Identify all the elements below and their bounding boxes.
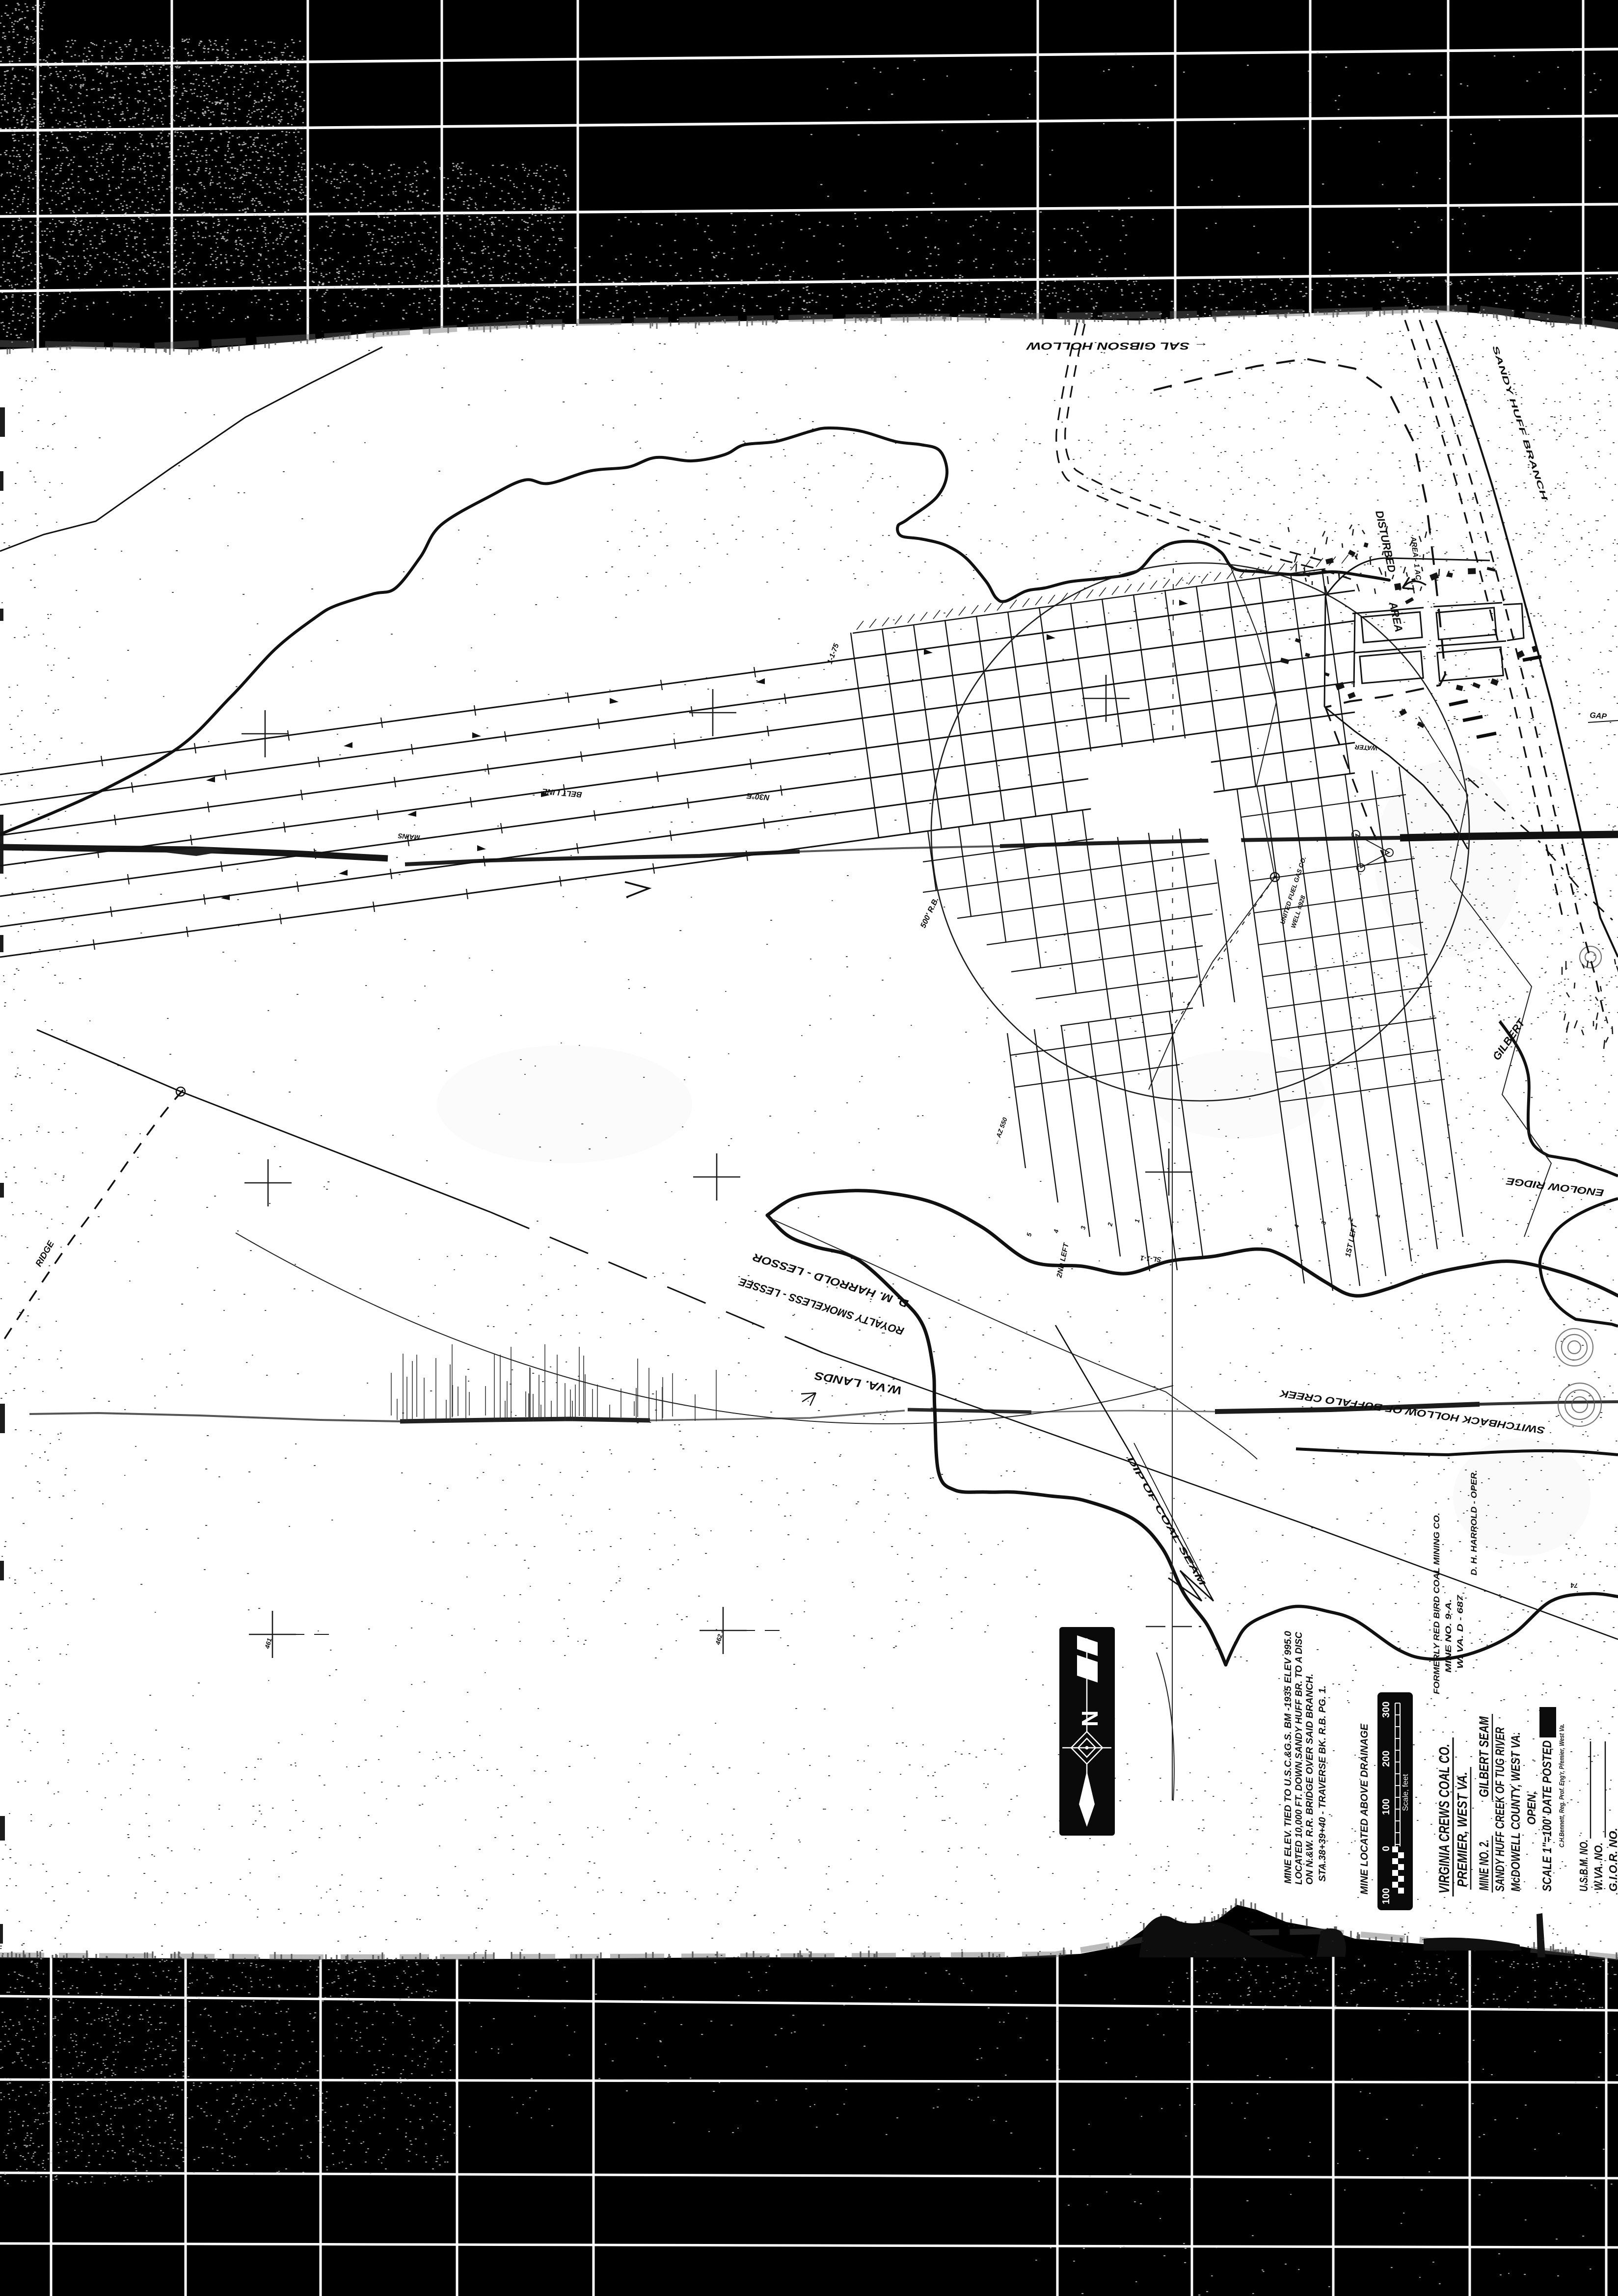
svg-text:LOCATED 10,000 FT. DOWN SANDY: LOCATED 10,000 FT. DOWN SANDY HUFF BR. T…	[1294, 1632, 1304, 1885]
svg-text:D. H. HARROLD - OPER.: D. H. HARROLD - OPER.	[1469, 1470, 1479, 1575]
svg-text:MINE LOCATED ABOVE DRAINAGE: MINE LOCATED ABOVE DRAINAGE	[1359, 1723, 1370, 1895]
svg-text:N: N	[1077, 1710, 1103, 1727]
svg-text:MINE NO. 9-A.: MINE NO. 9-A.	[1444, 1599, 1453, 1673]
svg-text:0: 0	[1381, 1846, 1392, 1851]
svg-text:C.H.Bennett, Reg. Prof. Eng'r,: C.H.Bennett, Reg. Prof. Eng'r, Premier, …	[1558, 1724, 1565, 1847]
svg-text:W.VA. NO.: W.VA. NO.	[1592, 1842, 1605, 1891]
svg-text:ON N.&W. R.R. BRIDGE OVER SAID: ON N.&W. R.R. BRIDGE OVER SAID BRANCH.	[1305, 1674, 1315, 1885]
svg-text:OPEN,: OPEN,	[1525, 1791, 1538, 1825]
svg-text:200: 200	[1381, 1751, 1392, 1767]
svg-text:Scale, feet: Scale, feet	[1402, 1774, 1410, 1811]
svg-text:U.S.B.M. NO.: U.S.B.M. NO.	[1577, 1840, 1590, 1892]
svg-text:← SAL GIBSON HOLLOW: ← SAL GIBSON HOLLOW	[1025, 340, 1209, 351]
svg-text:MINE NO. 2.: MINE NO. 2.	[1477, 1840, 1491, 1891]
svg-text:MINE ELEV. TIED TO U.S.C.&G.S: MINE ELEV. TIED TO U.S.C.&G.S. BM -1935 …	[1283, 1631, 1294, 1884]
svg-text:FORMERLY RED BIRD COAL MINING: FORMERLY RED BIRD COAL MINING CO.	[1432, 1513, 1441, 1694]
svg-text:SCALE 1"=100' DATE POSTED: SCALE 1"=100' DATE POSTED	[1540, 1740, 1554, 1892]
svg-text:GILBERT SEAM: GILBERT SEAM	[1477, 1716, 1491, 1797]
svg-text:G.I.O.R. NO.: G.I.O.R. NO.	[1607, 1828, 1618, 1892]
svg-text:STA.38+39+40 - TRAVERSE BK. R.: STA.38+39+40 - TRAVERSE BK. R.B. PG. 1.	[1318, 1685, 1328, 1882]
svg-text:GAP: GAP	[1590, 711, 1607, 721]
svg-text:W. VA. D - 687: W. VA. D - 687	[1456, 1594, 1465, 1669]
svg-text:100: 100	[1381, 1799, 1392, 1815]
svg-text:McDOWELL COUNTY, WEST VA.: McDOWELL COUNTY, WEST VA.	[1509, 1732, 1523, 1892]
svg-text:100: 100	[1381, 1888, 1392, 1904]
svg-text:PREMIER, WEST VA.: PREMIER, WEST VA.	[1455, 1772, 1470, 1887]
svg-text:300: 300	[1381, 1702, 1392, 1718]
svg-text:SANDY HUFF CREEK OF TUG RIVER: SANDY HUFF CREEK OF TUG RIVER	[1493, 1727, 1507, 1892]
svg-text:74: 74	[1570, 1582, 1578, 1589]
svg-text:VIRGINIA CREWS COAL CO.: VIRGINIA CREWS COAL CO.	[1436, 1744, 1453, 1894]
svg-text:WATER: WATER	[1354, 744, 1377, 752]
